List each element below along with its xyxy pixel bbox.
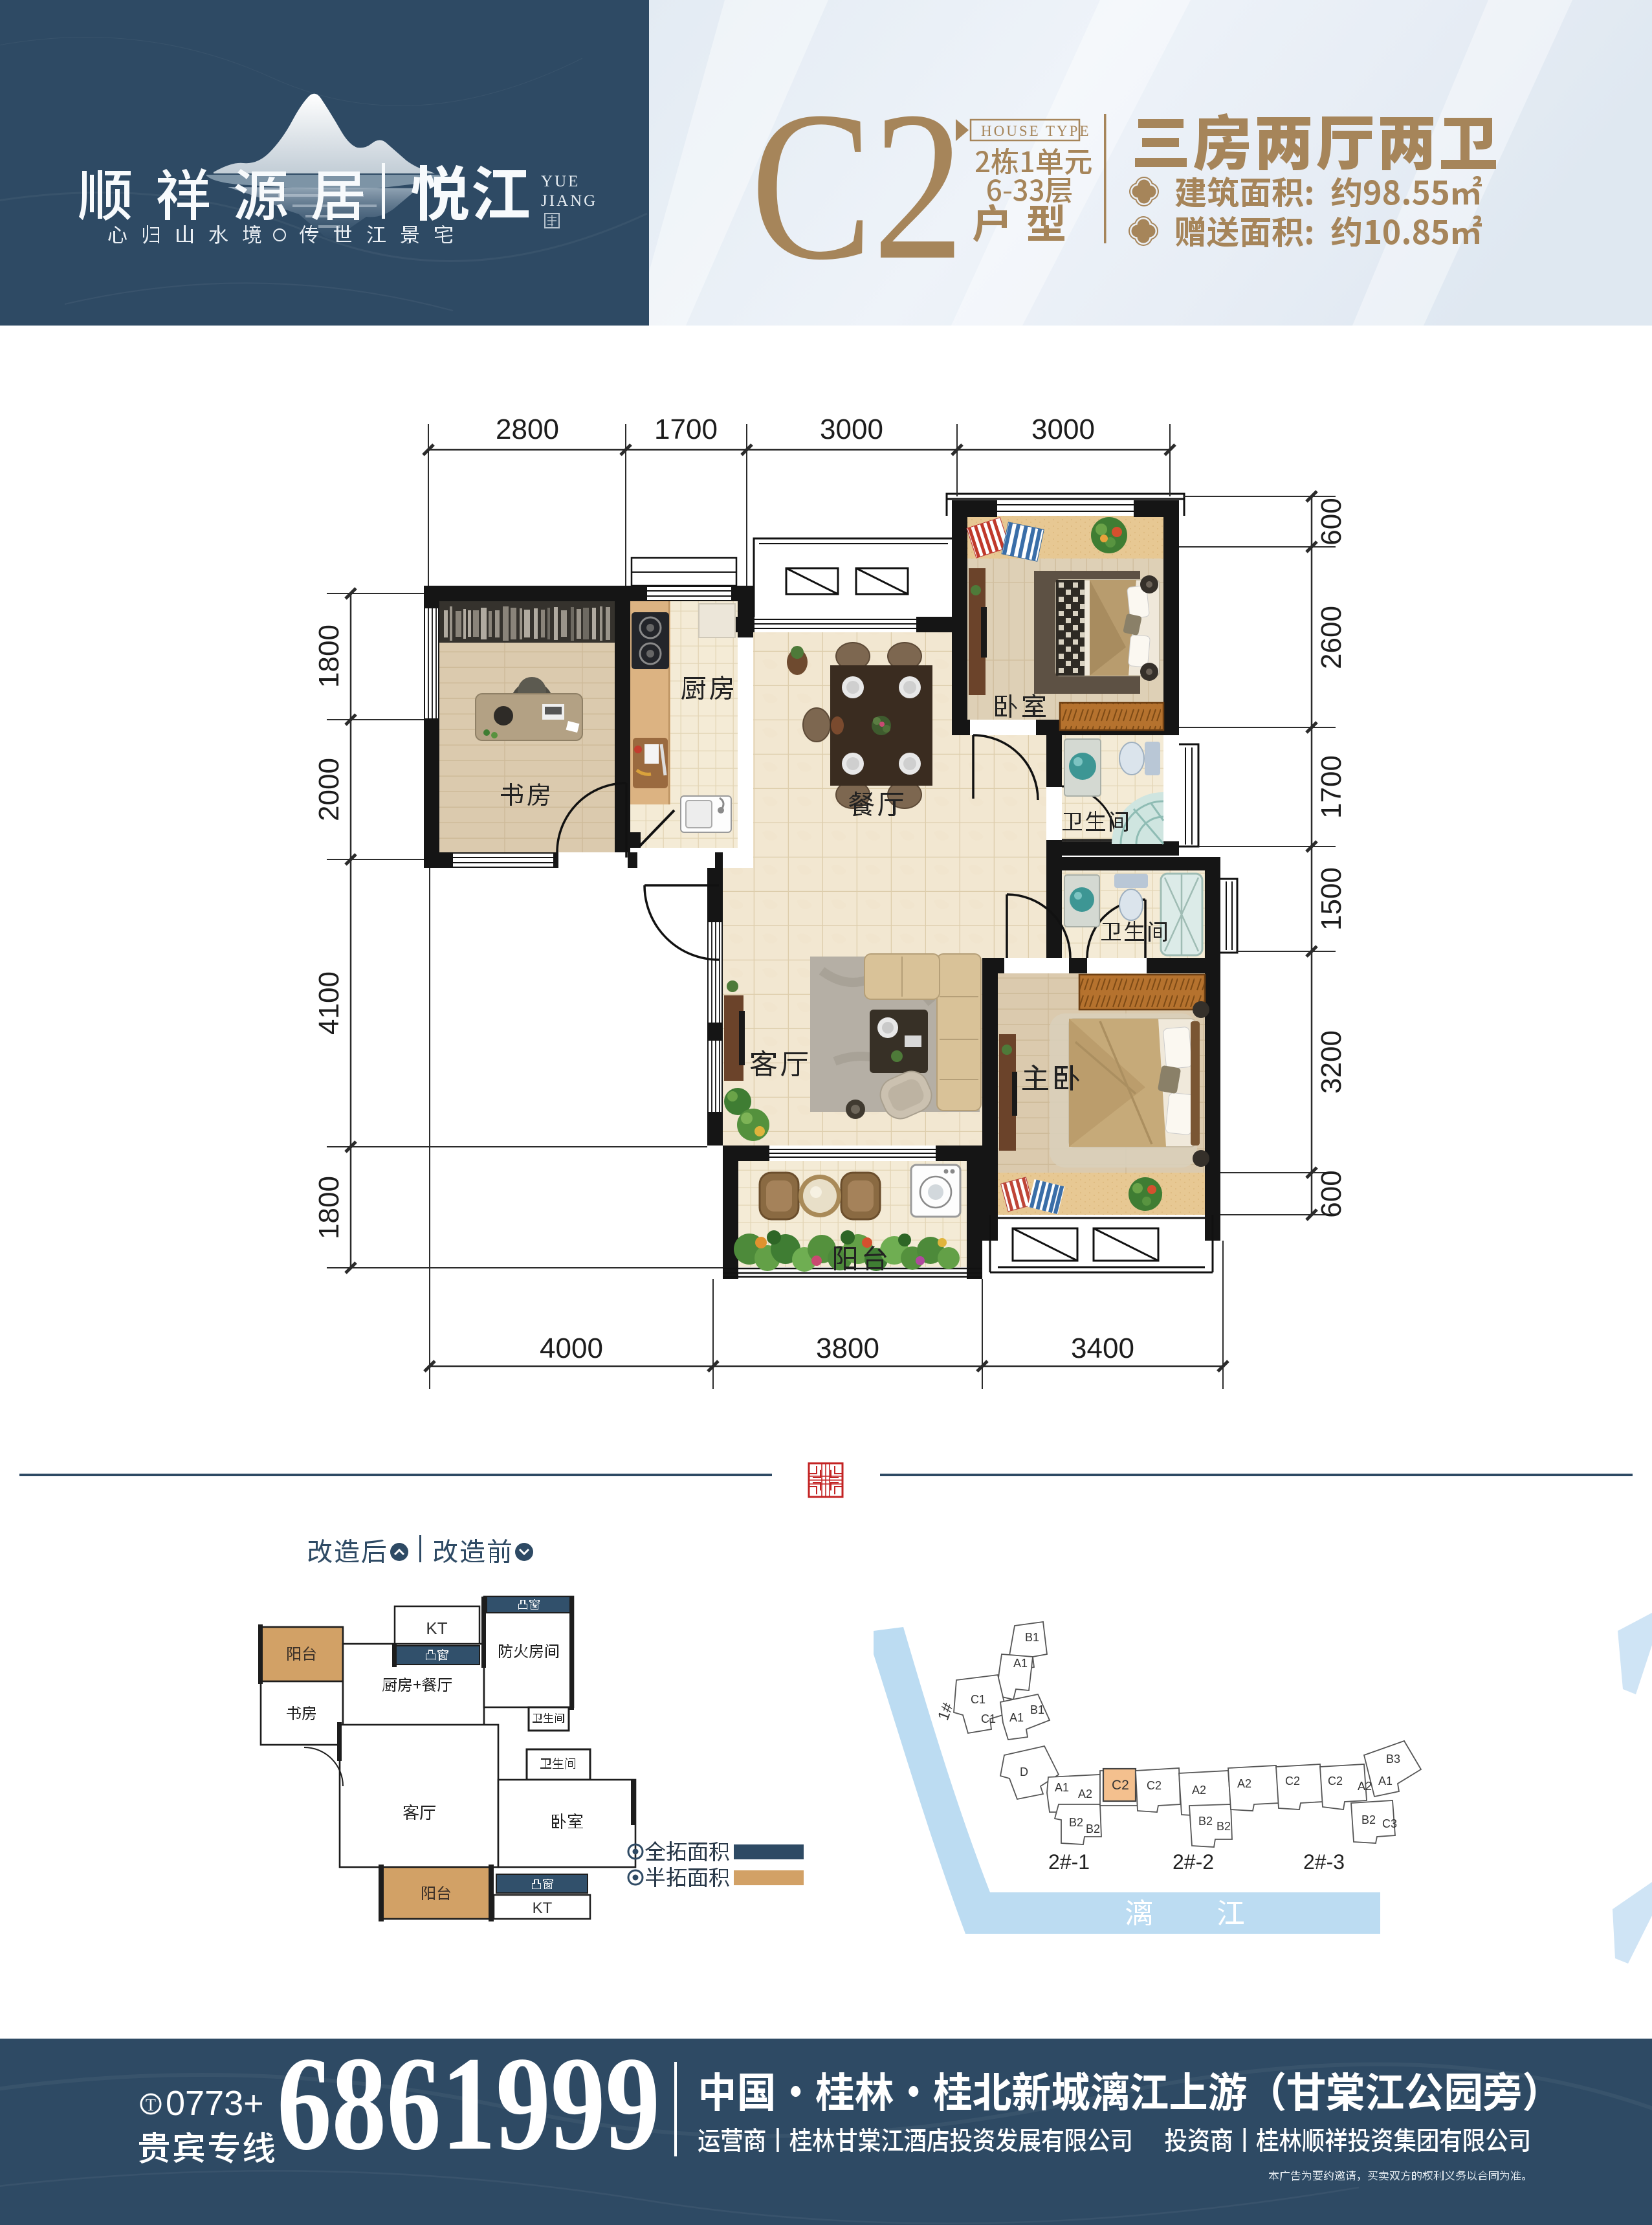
svg-text:A2: A2 bbox=[1078, 1788, 1092, 1800]
svg-text:B3: B3 bbox=[1386, 1753, 1400, 1766]
svg-text:B2: B2 bbox=[1361, 1813, 1376, 1826]
svg-text:D: D bbox=[1020, 1766, 1028, 1778]
svg-text:B1: B1 bbox=[1025, 1631, 1039, 1644]
svg-text:C2: C2 bbox=[751, 68, 964, 304]
svg-text:YUE: YUE bbox=[541, 173, 580, 190]
svg-text:C2: C2 bbox=[1112, 1778, 1129, 1793]
svg-text:4000: 4000 bbox=[540, 1333, 603, 1364]
svg-text:A1: A1 bbox=[1055, 1781, 1069, 1794]
svg-text:1800: 1800 bbox=[313, 625, 345, 688]
svg-text:2#-2: 2#-2 bbox=[1173, 1850, 1214, 1874]
svg-text:B2: B2 bbox=[1198, 1815, 1213, 1828]
svg-text:6861999: 6861999 bbox=[277, 2029, 660, 2178]
svg-text:3200: 3200 bbox=[1316, 1030, 1347, 1094]
svg-text:KT: KT bbox=[533, 1899, 553, 1917]
svg-text:C2: C2 bbox=[1328, 1775, 1343, 1788]
svg-text:HOUSE TYPE: HOUSE TYPE bbox=[981, 123, 1091, 139]
svg-text:B2: B2 bbox=[1217, 1820, 1231, 1833]
svg-text:C3: C3 bbox=[1382, 1817, 1397, 1830]
svg-text:3000: 3000 bbox=[1031, 414, 1095, 445]
svg-text:1700: 1700 bbox=[654, 414, 718, 445]
svg-text:1700: 1700 bbox=[1316, 755, 1347, 819]
svg-text:C2: C2 bbox=[1285, 1775, 1300, 1788]
svg-text:1800: 1800 bbox=[313, 1176, 345, 1239]
svg-text:1500: 1500 bbox=[1316, 867, 1347, 931]
svg-text:B2: B2 bbox=[1086, 1822, 1100, 1835]
svg-text:2#-3: 2#-3 bbox=[1303, 1850, 1345, 1874]
svg-text:JIANG: JIANG bbox=[541, 192, 597, 210]
svg-text:A2: A2 bbox=[1237, 1777, 1251, 1790]
svg-text:3400: 3400 bbox=[1071, 1333, 1134, 1364]
svg-text:A2: A2 bbox=[1358, 1780, 1372, 1793]
svg-text:2000: 2000 bbox=[313, 758, 345, 821]
svg-text:2600: 2600 bbox=[1316, 606, 1347, 669]
svg-text:A1: A1 bbox=[1378, 1775, 1393, 1788]
svg-text:C1: C1 bbox=[971, 1693, 986, 1706]
svg-text:B1: B1 bbox=[1030, 1703, 1044, 1716]
svg-text:A2: A2 bbox=[1192, 1784, 1206, 1797]
svg-text:2800: 2800 bbox=[496, 414, 559, 445]
svg-text:B2: B2 bbox=[1069, 1816, 1083, 1829]
svg-text:4100: 4100 bbox=[313, 971, 345, 1035]
svg-text:3000: 3000 bbox=[820, 414, 883, 445]
svg-text:C2: C2 bbox=[1147, 1779, 1162, 1792]
svg-text:3800: 3800 bbox=[816, 1333, 879, 1364]
svg-text:2#-1: 2#-1 bbox=[1048, 1850, 1090, 1874]
svg-text:600: 600 bbox=[1316, 498, 1347, 545]
svg-text:A1: A1 bbox=[1009, 1711, 1024, 1724]
svg-text:0773+: 0773+ bbox=[166, 2084, 264, 2123]
svg-text:600: 600 bbox=[1316, 1170, 1347, 1217]
svg-text:C1: C1 bbox=[981, 1712, 996, 1725]
svg-text:KT: KT bbox=[426, 1619, 447, 1638]
svg-text:A1: A1 bbox=[1013, 1657, 1028, 1670]
svg-text:T: T bbox=[146, 2096, 156, 2114]
